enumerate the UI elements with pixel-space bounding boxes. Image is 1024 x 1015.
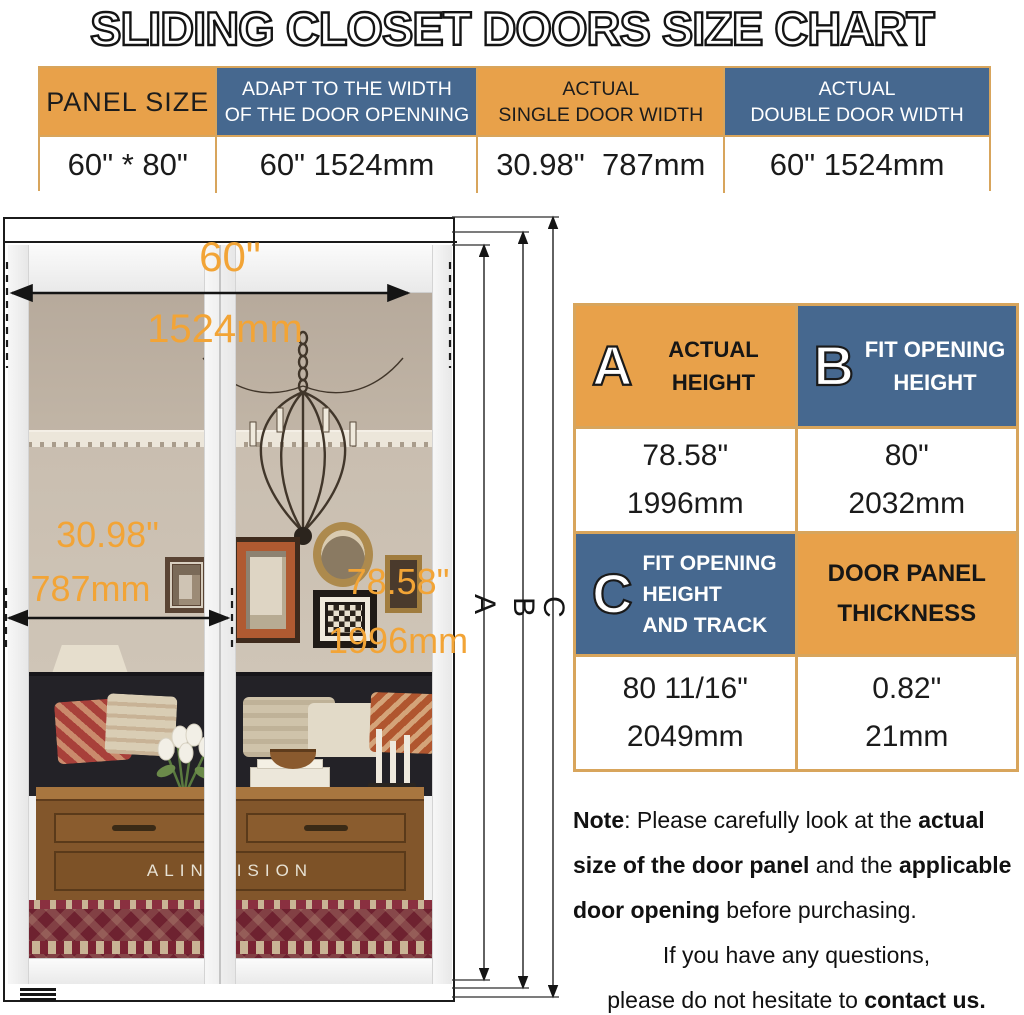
value-inches: 80 11/16" — [623, 672, 748, 706]
page-title: SLIDING CLOSET DOORS SIZE CHART — [0, 1, 1024, 56]
door-height-inches-label: 78.58" — [338, 561, 458, 603]
note-bold: Note — [573, 807, 624, 833]
note-line: size of the door panel and the applicabl… — [573, 851, 1020, 879]
letter-c-badge: C — [592, 566, 632, 622]
value-mm: 2049mm — [627, 720, 744, 754]
note-bold: size of the door panel — [573, 852, 809, 878]
book-stack — [250, 767, 330, 789]
door-left-stile — [8, 245, 29, 984]
value-adapt-width: 60" 1524mm — [217, 137, 478, 193]
sliding-door-illustration: ALIN VISION — [8, 245, 452, 984]
value-inches: 80" — [885, 439, 929, 473]
header-line: DOUBLE DOOR WIDTH — [750, 102, 963, 128]
header-line: FIT OPENING — [642, 548, 788, 579]
value-mm: 1996mm — [627, 487, 744, 521]
total-width-inches-label: 60" — [150, 233, 310, 281]
header-line: HEIGHT — [642, 579, 788, 610]
header-line: FIT OPENING — [860, 333, 1010, 366]
dimension-line-a-label: A — [469, 589, 499, 619]
roller-wheel-icon — [20, 988, 56, 991]
letter-a-badge: A — [592, 338, 632, 394]
door-middle-stiles — [204, 245, 236, 984]
letter-b-badge: B — [814, 338, 854, 394]
col-header-adapt-width: ADAPT TO THE WIDTH OF THE DOOR OPENNING — [217, 68, 478, 137]
value-inches: 78.58" — [642, 439, 728, 473]
value-mm: 21mm — [865, 720, 948, 754]
header-line: AND TRACK — [642, 610, 788, 641]
value-mm: 2032mm — [848, 487, 965, 521]
picture-frame-orange-mat — [232, 537, 300, 643]
door-dimension-figure: ALIN VISION — [0, 210, 570, 1015]
drawer-handle — [304, 825, 348, 831]
note-bold: door opening — [573, 897, 720, 923]
note-text: and the — [809, 852, 899, 878]
height-spec-table: A ACTUAL HEIGHT B FIT OPENING HEIGHT 78.… — [573, 303, 1019, 772]
header-line: HEIGHT — [860, 366, 1010, 399]
header-line: PANEL SIZE — [46, 89, 209, 115]
value-single-width: 30.98" 787mm — [478, 137, 725, 193]
header-line: HEIGHT — [638, 366, 788, 399]
col-header-panel-size: PANEL SIZE — [40, 68, 217, 137]
header-line: ADAPT TO THE WIDTH — [242, 76, 452, 102]
table-drawer — [54, 813, 214, 843]
note-bold: contact us. — [864, 987, 985, 1013]
value-inches: 0.82" — [872, 672, 941, 706]
table-drawer — [246, 813, 406, 843]
total-width-mm-label: 1524mm — [125, 307, 325, 352]
header-line: THICKNESS — [804, 594, 1011, 634]
cell-fit-opening-height-header: B FIT OPENING HEIGHT — [798, 306, 1017, 426]
candle — [390, 741, 396, 785]
cell-actual-height-value: 78.58" 1996mm — [576, 429, 795, 531]
note-bold: applicable — [899, 852, 1011, 878]
note-text: please do not hesitate to — [607, 987, 864, 1013]
cell-fit-opening-height-value: 80" 2032mm — [798, 429, 1017, 531]
value-double-width: 60" 1524mm — [725, 137, 989, 193]
cell-fit-opening-track-header: C FIT OPENING HEIGHT AND TRACK — [576, 534, 795, 654]
door-height-mm-label: 1996mm — [328, 620, 468, 662]
header-line: OF THE DOOR OPENNING — [225, 102, 470, 128]
header-line: ACTUAL — [638, 333, 788, 366]
candle — [376, 729, 382, 785]
note-line: door opening before purchasing. — [573, 896, 1020, 924]
door-right-stile — [432, 245, 452, 984]
cell-panel-thickness-value: 0.82" 21mm — [798, 657, 1017, 769]
note-bold: actual — [918, 807, 984, 833]
width-spec-table: PANEL SIZE ADAPT TO THE WIDTH OF THE DOO… — [38, 66, 991, 191]
note-text: before purchasing. — [720, 897, 917, 923]
single-door-mm-label: 787mm — [28, 568, 153, 610]
candle — [404, 735, 410, 785]
value-panel-size: 60" * 80" — [40, 137, 217, 193]
header-line: ACTUAL — [562, 76, 639, 102]
purchase-note: Note: Please carefully look at the actua… — [573, 806, 1020, 1015]
cell-fit-opening-track-value: 80 11/16" 2049mm — [576, 657, 795, 769]
note-line: Note: Please carefully look at the actua… — [573, 806, 1020, 834]
header-line: ACTUAL — [819, 76, 896, 102]
cell-actual-height-header: A ACTUAL HEIGHT — [576, 306, 795, 426]
note-line: please do not hesitate to contact us. — [573, 986, 1020, 1014]
col-header-single-width: ACTUAL SINGLE DOOR WIDTH — [478, 68, 725, 137]
col-header-double-width: ACTUAL DOUBLE DOOR WIDTH — [725, 68, 989, 137]
single-door-inches-label: 30.98" — [45, 514, 170, 556]
drawer-handle — [112, 825, 156, 831]
note-text: If you have any questions, — [663, 942, 930, 968]
dimension-line-c-label: C — [538, 592, 568, 622]
picture-frame — [165, 557, 208, 613]
size-chart-infographic: SLIDING CLOSET DOORS SIZE CHART PANEL SI… — [0, 0, 1024, 1015]
note-text: : Please carefully look at the — [624, 807, 918, 833]
cell-panel-thickness-header: DOOR PANEL THICKNESS — [798, 534, 1017, 654]
header-line: SINGLE DOOR WIDTH — [498, 102, 703, 128]
note-line: If you have any questions, — [573, 941, 1020, 969]
header-line: DOOR PANEL — [804, 554, 1011, 594]
dimension-line-b-label: B — [508, 592, 538, 622]
